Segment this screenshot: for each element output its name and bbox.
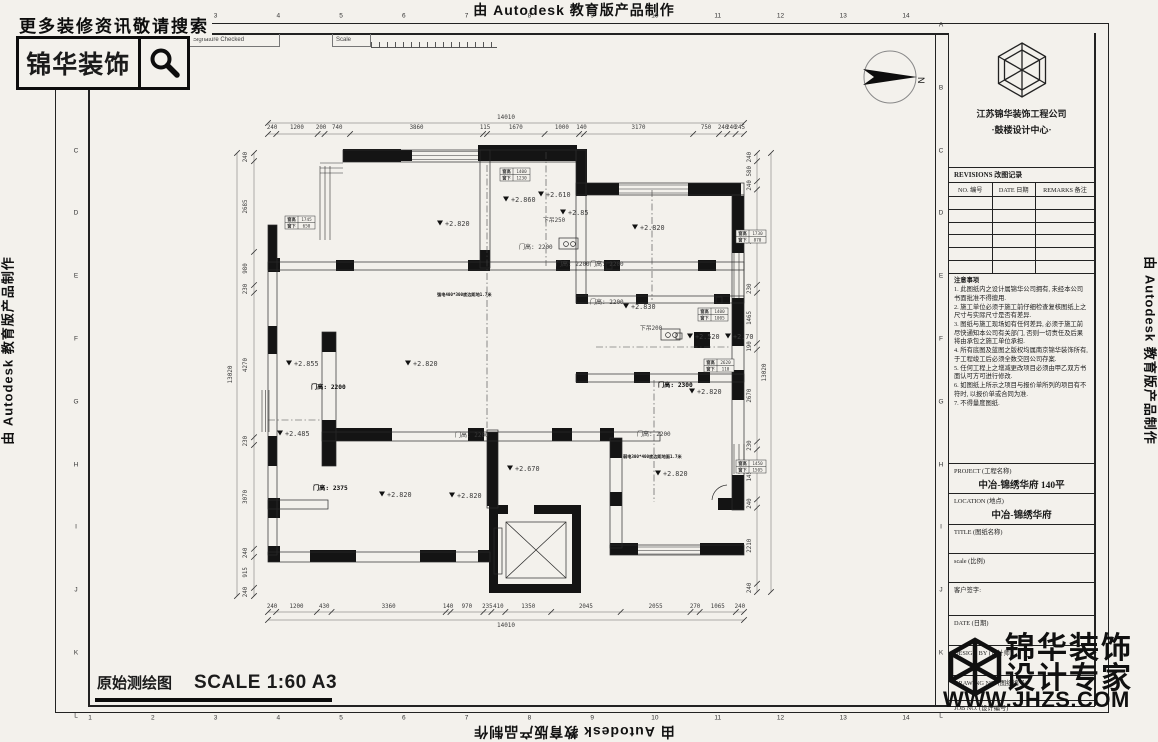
note-item: 7. 不得量度图纸. [954, 400, 1089, 409]
level-label: +2.820 [387, 491, 412, 499]
drawing-name: 原始测绘图 [97, 672, 172, 693]
dim-label: 240 [243, 547, 249, 558]
north-label: N [916, 77, 926, 84]
revision-empty-cell [993, 223, 1037, 235]
revision-empty-cell [1036, 235, 1094, 247]
note-item: 1. 此图纸内之设计属锦华公司拥有, 未经本公司书面批准不得擅用. [954, 286, 1089, 303]
client-signature-row: 客户签字: [949, 583, 1094, 616]
dim-label: 230 [747, 283, 753, 294]
dim-label: 140 [576, 125, 587, 131]
door-height-label: 门高: 2200 [455, 431, 489, 439]
dim-label: 240 [747, 180, 753, 191]
window-height-label: 窗高 [287, 216, 296, 223]
level-label: +2.70 [733, 333, 753, 341]
revision-empty-cell [949, 261, 993, 273]
dim-label: 1465 [747, 310, 753, 324]
door-height-label: 门高: 2200 [519, 243, 553, 251]
revision-empty-cell [949, 235, 993, 247]
door-height-label: 门高: 2375 [313, 484, 348, 492]
level-label: +2.830 [631, 303, 656, 311]
window-sill-label: 窗下 [502, 175, 511, 182]
window-sill-label: 窗下 [287, 223, 296, 230]
revision-empty-cell [1036, 210, 1094, 222]
location-value: 中冶-锦绣华府 [954, 507, 1089, 521]
revision-empty-cell [993, 210, 1037, 222]
dim-label: 1670 [509, 125, 523, 131]
dim-label: 240 [747, 498, 753, 509]
dim-label: 140 [443, 604, 454, 610]
drawing-title-label: TITLE (图纸名称) [954, 527, 1089, 536]
dim-label: 1200 [290, 604, 304, 610]
notes-list: 1. 此图纸内之设计属锦华公司拥有, 未经本公司书面批准不得擅用.2. 施工单位… [954, 286, 1089, 408]
dim-label: 3860 [410, 125, 424, 131]
dim-label: 980 [243, 263, 249, 274]
revision-empty-row [949, 261, 1094, 273]
company-logo-cell: 江苏锦华装饰工程公司 ·鼓楼设计中心· [949, 33, 1094, 168]
level-label: +2.855 [294, 360, 319, 368]
revision-empty-row [949, 223, 1094, 236]
dim-label: 115 [480, 125, 491, 131]
project-value: 中冶-锦绣华府 140平 [954, 477, 1089, 491]
dim-label: 2685 [243, 199, 249, 213]
dim-label: 240 [243, 586, 249, 597]
overall-dim-label: 13020 [227, 365, 234, 383]
level-label: +2.820 [640, 224, 665, 232]
dim-label: 240 [267, 125, 278, 131]
company-name: 江苏锦华装饰工程公司 [976, 107, 1066, 120]
dim-label: 1350 [521, 604, 535, 610]
drawing-scale: SCALE 1:60 A3 [194, 672, 337, 694]
revision-empty-cell [949, 223, 993, 235]
dim-label: 915 [243, 567, 249, 578]
revision-empty-cell [993, 235, 1037, 247]
dim-label: 235 [482, 604, 493, 610]
rev-col-remarks: REMARKS 备注 [1036, 183, 1094, 196]
jhzs-watermark: 锦华装饰 设计专家 WWW.JHZS.COM [943, 625, 1158, 723]
door-height-label: 门高: 2200 [637, 430, 671, 438]
electrical-note: 强电400*300底边距地1.7米 [437, 291, 492, 298]
dim-label: 3360 [382, 604, 396, 610]
scale-row: scale (比例) [949, 554, 1094, 583]
level-label: +2.610 [546, 191, 571, 199]
dim-label: 1200 [290, 125, 304, 131]
window-sill-label: 窗下 [700, 315, 709, 322]
note-item: 6. 如图纸上所示之项目与报价单所列的项目有不符时, 以报价单或合同为准. [954, 382, 1089, 399]
revision-empty-cell [993, 261, 1037, 273]
revision-empty-row [949, 210, 1094, 223]
window-height-value: 1400 [516, 169, 527, 175]
dim-label: 2670 [747, 388, 753, 402]
dim-label: 240 [267, 604, 278, 610]
revision-empty-cell [1036, 261, 1094, 273]
revision-empty-cell [949, 210, 993, 222]
notes-section: 注意事项 1. 此图纸内之设计属锦华公司拥有, 未经本公司书面批准不得擅用.2.… [949, 274, 1094, 464]
level-label: +2.670 [515, 465, 540, 473]
window-sill-value: 1005 [714, 316, 725, 322]
overall-dim-label: 14010 [497, 622, 515, 629]
elevator-door-gap [508, 505, 534, 514]
location-row: LOCATION (地点) 中冶-锦绣华府 [949, 494, 1094, 525]
revision-empty-cell [949, 197, 993, 209]
dim-label: 230 [747, 440, 753, 451]
window-sill-label: 窗下 [738, 467, 747, 474]
note-item: 5. 任何工程上之增减更改项目必须由甲乙双方书面认可方可进行修改. [954, 365, 1089, 382]
dim-label: 245 [735, 125, 746, 131]
dim-label: 190 [747, 341, 753, 352]
dim-label: 240 [747, 151, 753, 162]
north-compass: N [863, 51, 926, 103]
window-sill-label: 窗下 [738, 237, 747, 244]
window-height-label: 窗高 [502, 168, 511, 175]
dim-label: 410 [493, 604, 504, 610]
revisions-title: REVISIONS 改图记录 [949, 168, 1094, 183]
level-label: +2.860 [511, 196, 536, 204]
window-height-value: 1730 [752, 231, 763, 237]
window-sill-value: 650 [303, 224, 311, 230]
rev-col-no: NO. 编号 [949, 183, 993, 196]
level-label: +2.520 [695, 333, 720, 341]
dim-label: 750 [701, 125, 712, 131]
dim-label: 4270 [243, 358, 249, 372]
title-block: 江苏锦华装饰工程公司 ·鼓楼设计中心· REVISIONS 改图记录 NO. 编… [948, 33, 1094, 706]
project-row: PROJECT (工程名称) 中冶-锦绣华府 140平 [949, 464, 1094, 494]
cube-logo-icon [993, 41, 1051, 99]
dim-label: 2055 [649, 604, 663, 610]
revision-empty-cell [1036, 197, 1094, 209]
sheet-title: 原始测绘图 SCALE 1:60 A3 [97, 672, 337, 694]
dim-label: 240 [747, 582, 753, 593]
dim-label: 200 [316, 125, 327, 131]
revision-empty-row [949, 235, 1094, 248]
client-signature-label: 客户签字: [954, 585, 1089, 594]
dim-label: 3070 [243, 489, 249, 503]
dim-label: 1000 [555, 125, 569, 131]
dim-label: 970 [462, 604, 473, 610]
window-height-label: 窗高 [738, 230, 747, 237]
level-label: +2.820 [697, 388, 722, 396]
location-label: LOCATION (地点) [954, 496, 1089, 505]
level-label: +2.820 [457, 492, 482, 500]
revisions-header-row: NO. 编号 DATE 日期 REMARKS 备注 [949, 183, 1094, 197]
level-label: +2.820 [663, 470, 688, 478]
window-sill-value: 1230 [516, 176, 527, 182]
note-item: 4. 所有底图及蓝图之版权均属南京锦华装饰所有, 于工程竣工后必须全数交回公司存… [954, 347, 1089, 364]
level-label: +2.820 [445, 220, 470, 228]
revision-empty-cell [1036, 223, 1094, 235]
revision-empty-row [949, 197, 1094, 210]
dim-label: 430 [319, 604, 330, 610]
dim-label: 2045 [579, 604, 593, 610]
window-sill-label: 窗下 [706, 366, 715, 373]
dim-label: 240 [735, 604, 746, 610]
project-label: PROJECT (工程名称) [954, 466, 1089, 475]
door-height-label: 门高: 2200 [556, 260, 590, 268]
dim-label: 270 [690, 604, 701, 610]
revision-empty-cell [949, 248, 993, 260]
window-height-label: 窗高 [738, 460, 747, 467]
dim-label: 230 [243, 435, 249, 446]
dim-label: 230 [243, 283, 249, 294]
window-height-value: 1745 [301, 217, 312, 223]
window-height-value: 1450 [752, 461, 763, 467]
notes-title: 注意事项 [954, 277, 1089, 286]
window-sill-value: 870 [754, 238, 762, 244]
revision-empty-row [949, 248, 1094, 261]
scale-label: scale (比例) [954, 556, 1089, 565]
overall-dim-label: 14010 [497, 114, 515, 121]
note-item: 3. 图纸与施工现场如有任何差异, 必须于施工前尽快通知本公司有关部门, 否则一… [954, 321, 1089, 347]
title-underline [95, 698, 332, 702]
door-height-label: 门高: 2200 [590, 298, 624, 306]
window-height-value: 1400 [714, 309, 725, 315]
electrical-note: 弱电300*400底边距地面1.7米 [623, 453, 683, 460]
windows [262, 152, 744, 555]
door-height-label: 门高: 2200 [590, 260, 624, 268]
ceiling-drop-label: 下吊250 [543, 217, 566, 224]
level-label: +2.820 [413, 360, 438, 368]
window-height-label: 窗高 [700, 308, 709, 315]
window-height-value: 2620 [720, 360, 731, 366]
watermark-url: WWW.JHZS.COM [943, 687, 1130, 713]
design-center-name: ·鼓楼设计中心· [991, 123, 1051, 136]
dim-label: 580 [747, 166, 753, 177]
dim-label: 1065 [711, 604, 725, 610]
drawing-title-row: TITLE (图纸名称) [949, 525, 1094, 554]
revisions-empty-rows [949, 197, 1094, 274]
note-item: 2. 施工单位必须于施工前仔细检查复核图纸上之尺寸与实际尺寸是否有差异. [954, 304, 1089, 321]
rev-col-date: DATE 日期 [993, 183, 1037, 196]
level-label: +2.485 [285, 430, 310, 438]
dim-label: 240 [243, 151, 249, 162]
revision-empty-cell [993, 248, 1037, 260]
window-sill-value: 1505 [752, 468, 763, 474]
level-label: +2.85 [568, 209, 588, 217]
revision-empty-cell [1036, 248, 1094, 260]
dim-label: 2210 [747, 538, 753, 552]
overall-dim-label: 13020 [761, 363, 768, 381]
ceiling-drop-label: 下吊200 [640, 325, 663, 332]
window-sill-value: 110 [722, 367, 730, 373]
revision-empty-cell [993, 197, 1037, 209]
window-height-label: 窗高 [706, 359, 715, 366]
door-height-label: 门高: 2200 [311, 383, 346, 391]
dim-label: 3170 [632, 125, 646, 131]
dim-label: 740 [332, 125, 343, 131]
door-height-label: 门高: 2300 [658, 381, 693, 389]
